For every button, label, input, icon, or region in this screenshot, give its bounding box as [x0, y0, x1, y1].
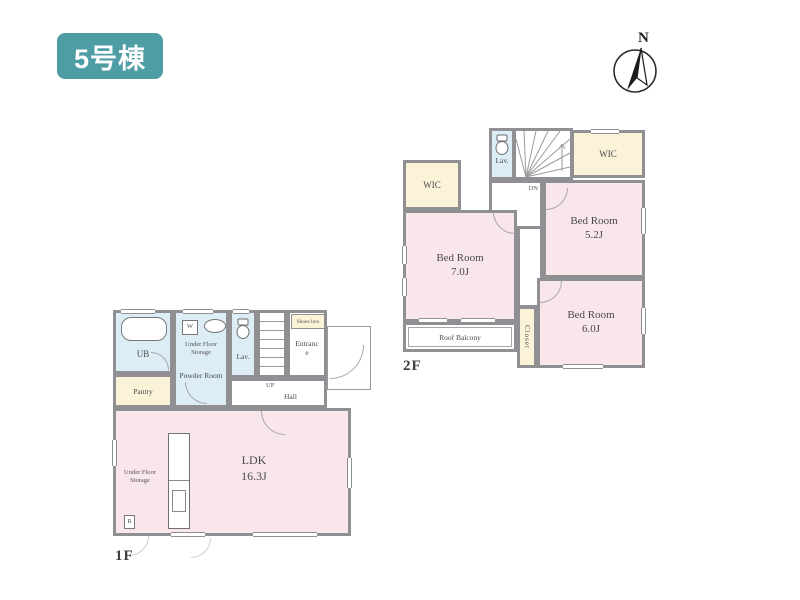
shoes-box-label: Shoes box: [297, 319, 320, 325]
closet-label: Closet: [523, 325, 531, 349]
window-marker: [641, 208, 646, 234]
window-marker: [402, 246, 407, 264]
wic-left-label: WIC: [423, 180, 441, 190]
compass-icon: N: [606, 26, 664, 100]
counter-divider: [169, 480, 189, 481]
entrance-porch: [327, 326, 371, 390]
lavatory-2f-label: Lav.: [495, 156, 508, 165]
window-marker: [402, 278, 407, 296]
lavatory-1f: Lav.: [229, 310, 257, 378]
floor-2-plan: Lav. WIC: [403, 128, 647, 380]
sink-icon: [204, 319, 226, 333]
window-marker: [121, 309, 155, 314]
floor-2-label: 2F: [403, 358, 422, 375]
wic-right-label: WIC: [599, 149, 617, 159]
washer-label: W: [187, 323, 193, 331]
floor-1-plan: UB Pantry W Under Floor Storage Powder R…: [113, 310, 375, 572]
under-floor-storage-label: Under Floor Storage: [181, 341, 221, 357]
hall-1f: UP Hall: [229, 378, 327, 408]
wic-right-2f: WIC: [571, 130, 645, 178]
closet-2f: Closet: [517, 306, 537, 368]
window-marker: [461, 318, 495, 323]
toilet-icon: [235, 318, 251, 340]
refrigerator-label: R: [127, 518, 131, 526]
floor-plan-canvas: 5号棟 N Lav.: [0, 0, 800, 600]
entrance-label: Entrance: [295, 339, 319, 357]
roof-balcony-label: Roof Balcony: [439, 333, 481, 342]
compass-north-label: N: [638, 30, 649, 46]
pantry: Pantry: [113, 374, 173, 408]
entrance: Shoes box Entrance: [287, 310, 327, 378]
kitchen-sink-icon: [172, 490, 186, 512]
floor-1-label: 1F: [115, 548, 134, 565]
stairs-2f: [513, 128, 573, 180]
window-marker: [563, 364, 603, 369]
window-marker: [641, 308, 646, 334]
ldk-room: LDK 16.3J Under Floor Storage R: [113, 408, 351, 536]
wic-left-2f: WIC: [403, 160, 461, 210]
hall-1f-label: Hall: [284, 392, 297, 401]
window-marker: [419, 318, 447, 323]
roof-balcony: Roof Balcony: [403, 322, 517, 352]
bathtub-icon: [121, 317, 167, 341]
refrigerator-icon: R: [124, 515, 135, 529]
stairs-treads-icon: [516, 131, 570, 177]
window-marker: [347, 458, 352, 488]
stairs-1f: [257, 310, 287, 378]
building-badge: 5号棟: [57, 33, 163, 79]
pantry-label: Pantry: [133, 387, 153, 396]
bedroom-5j-label: Bed Room 5.2J: [570, 215, 618, 243]
powder-room-label: Powder Room: [176, 371, 226, 380]
window-marker: [253, 532, 317, 537]
ldk-label: LDK 16.3J: [224, 453, 284, 484]
window-marker: [233, 309, 249, 314]
window-marker: [591, 129, 619, 134]
stairs-up-label: UP: [266, 382, 274, 390]
entrance-door-arc: [330, 345, 364, 379]
window-marker: [183, 309, 213, 314]
bedroom-6j-label: Bed Room 6.0J: [567, 309, 615, 337]
lavatory-2f: Lav.: [489, 128, 515, 180]
kitchen-counter: [168, 433, 190, 529]
exterior-door-arc: [191, 538, 211, 558]
window-marker: [171, 532, 205, 537]
toilet-icon: [494, 134, 510, 156]
washer-icon: W: [182, 320, 198, 335]
window-marker: [112, 440, 117, 466]
shoes-box: Shoes box: [291, 314, 325, 329]
stairs-down-label: DN: [529, 185, 538, 193]
bedroom-7j-label: Bed Room 7.0J: [436, 252, 484, 280]
lavatory-1f-label: Lav.: [236, 352, 249, 361]
under-floor-storage-ldk-label: Under Floor Storage: [118, 469, 162, 485]
